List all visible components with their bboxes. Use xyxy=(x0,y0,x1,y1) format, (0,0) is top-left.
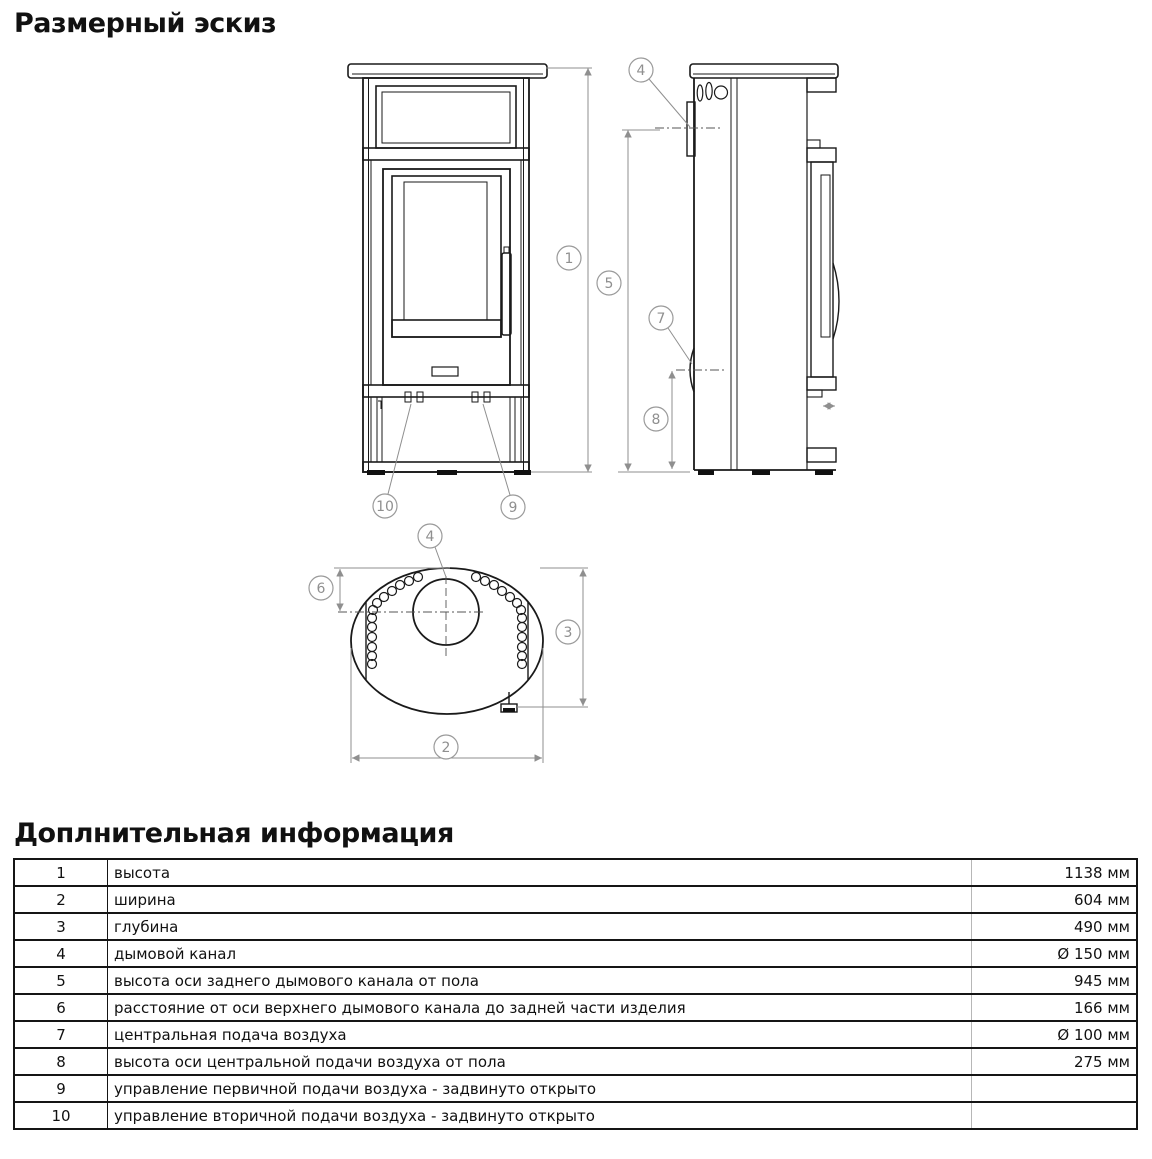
row-desc-cell: управление вторичной подачи воздуха - за… xyxy=(108,1102,972,1129)
svg-text:8: 8 xyxy=(652,412,661,428)
row-number-cell: 8 xyxy=(14,1048,108,1075)
top-view xyxy=(351,568,543,714)
table-row: 5 высота оси заднего дымового канала от … xyxy=(14,967,1137,994)
front-door-glass xyxy=(404,182,487,320)
page: { "page": { "sketch_title": "Размерный э… xyxy=(0,0,1152,1159)
svg-text:5: 5 xyxy=(605,276,614,292)
front-door xyxy=(383,169,510,385)
row-value-cell: Ø 150 мм xyxy=(972,940,1138,967)
row-number-cell: 4 xyxy=(14,940,108,967)
vent-holes xyxy=(368,573,527,669)
front-door-glass-frame xyxy=(392,176,501,337)
front-top-plate xyxy=(348,64,547,78)
row-value-cell: 945 мм xyxy=(972,967,1138,994)
table-row: 6 расстояние от оси верхнего дымового ка… xyxy=(14,994,1137,1021)
axis-lines xyxy=(338,128,724,656)
row-number-cell: 7 xyxy=(14,1021,108,1048)
info-title: Доплнительная информация xyxy=(14,818,454,849)
row-desc-cell: расстояние от оси верхнего дымового кана… xyxy=(108,994,972,1021)
row-number-cell: 9 xyxy=(14,1075,108,1102)
side-glass-bulge xyxy=(833,263,839,339)
table-row: 7 центральная подача воздуха Ø 100 мм xyxy=(14,1021,1137,1048)
top-vent-hole xyxy=(697,85,703,101)
row-desc-cell: ширина xyxy=(108,886,972,913)
callout-6: 6 xyxy=(309,576,333,600)
row-value-cell: Ø 100 мм xyxy=(972,1021,1138,1048)
side-view xyxy=(687,64,839,475)
row-number-cell: 5 xyxy=(14,967,108,994)
callout-1: 1 xyxy=(557,246,581,270)
row-value-cell: 604 мм xyxy=(972,886,1138,913)
callout-8: 8 xyxy=(644,407,668,431)
svg-text:9: 9 xyxy=(509,500,518,516)
row-desc-cell: высота xyxy=(108,859,972,886)
table-row: 4 дымовой канал Ø 150 мм xyxy=(14,940,1137,967)
callout-3: 3 xyxy=(556,620,580,644)
row-value-cell xyxy=(972,1075,1138,1102)
row-value-cell: 1138 мм xyxy=(972,859,1138,886)
callout-4-top: 4 xyxy=(418,524,442,548)
svg-text:4: 4 xyxy=(637,63,646,79)
front-lower-compartment xyxy=(371,397,521,462)
row-value-cell: 275 мм xyxy=(972,1048,1138,1075)
row-desc-cell: высота оси заднего дымового канала от по… xyxy=(108,967,972,994)
table-row: 8 высота оси центральной подачи воздуха … xyxy=(14,1048,1137,1075)
callout-10: 10 xyxy=(373,494,397,518)
svg-text:7: 7 xyxy=(657,311,666,327)
svg-text:1: 1 xyxy=(565,251,574,267)
table-row: 1 высота 1138 мм xyxy=(14,859,1137,886)
svg-text:2: 2 xyxy=(442,740,451,756)
row-value-cell xyxy=(972,1102,1138,1129)
svg-text:4: 4 xyxy=(426,529,435,545)
row-value-cell: 166 мм xyxy=(972,994,1138,1021)
row-desc-cell: глубина xyxy=(108,913,972,940)
row-number-cell: 1 xyxy=(14,859,108,886)
callout-9: 9 xyxy=(501,495,525,519)
callout-5: 5 xyxy=(597,271,621,295)
callout-2: 2 xyxy=(434,735,458,759)
row-number-cell: 6 xyxy=(14,994,108,1021)
svg-text:6: 6 xyxy=(317,581,326,597)
table-row: 9 управление первичной подачи воздуха - … xyxy=(14,1075,1137,1102)
callout-4-side: 4 xyxy=(629,58,653,82)
additional-info-table: 1 высота 1138 мм 2 ширина 604 мм 3 глуби… xyxy=(13,858,1138,1130)
row-value-cell: 490 мм xyxy=(972,913,1138,940)
row-desc-cell: управление первичной подачи воздуха - за… xyxy=(108,1075,972,1102)
dimensional-sketch: 1 5 4 7 8 10 9 4 xyxy=(0,0,1152,820)
door-latch xyxy=(432,367,458,376)
svg-text:10: 10 xyxy=(376,499,394,515)
front-body xyxy=(363,78,529,472)
callout-7: 7 xyxy=(649,306,673,330)
row-desc-cell: высота оси центральной подачи воздуха от… xyxy=(108,1048,972,1075)
top-view-outline xyxy=(351,568,543,714)
front-upper-window xyxy=(376,86,516,148)
row-desc-cell: центральная подача воздуха xyxy=(108,1021,972,1048)
row-number-cell: 10 xyxy=(14,1102,108,1129)
dimension-lines xyxy=(334,68,835,763)
row-desc-cell: дымовой канал xyxy=(108,940,972,967)
table-row: 10 управление вторичной подачи воздуха -… xyxy=(14,1102,1137,1129)
front-view xyxy=(348,64,547,475)
svg-text:3: 3 xyxy=(564,625,573,641)
table-row: 3 глубина 490 мм xyxy=(14,913,1137,940)
table-row: 2 ширина 604 мм xyxy=(14,886,1137,913)
row-number-cell: 2 xyxy=(14,886,108,913)
row-number-cell: 3 xyxy=(14,913,108,940)
side-top-plate xyxy=(690,64,838,78)
